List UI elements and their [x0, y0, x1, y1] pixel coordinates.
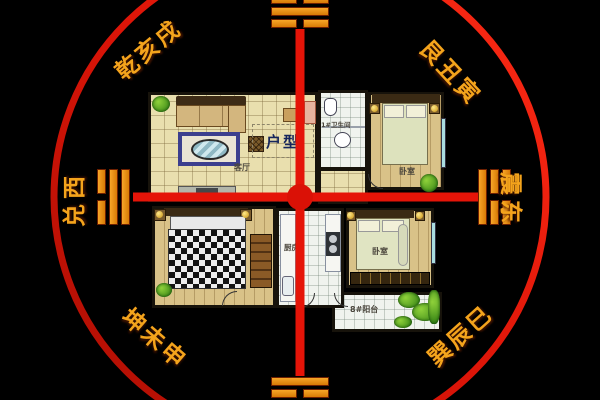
trigram-north-kan	[271, 0, 329, 28]
trigram-south-li	[271, 377, 329, 400]
trigram-line-solid	[271, 7, 329, 16]
trigram-line-solid	[121, 169, 130, 225]
center-dot	[287, 184, 313, 210]
trigram-line-broken	[97, 169, 106, 225]
trigram-line-broken	[271, 19, 329, 28]
label-west-duixi: 兑西	[55, 171, 89, 227]
fengshui-compass-floorplan: 户型 客厅 1#卫生间 卧室 厨房 卧室 8#阳台 乾亥戌 艮丑寅 坤未申 巽辰…	[0, 0, 600, 400]
label-east-zhendong: 震东	[496, 172, 530, 228]
trigram-line-solid	[271, 377, 329, 386]
trigram-west-dui	[97, 169, 130, 225]
trigram-line-solid	[109, 169, 118, 225]
trigram-line-broken	[271, 0, 329, 4]
trigram-line-solid	[478, 169, 487, 225]
trigram-line-broken	[271, 389, 329, 398]
